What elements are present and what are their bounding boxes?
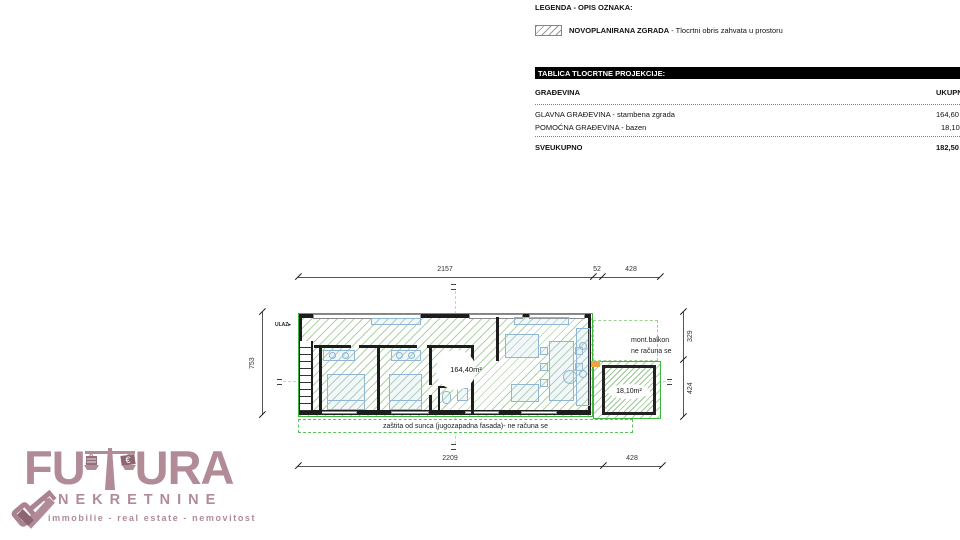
pool-detail-marker [591, 361, 600, 367]
dimension-line-bottom [298, 466, 662, 467]
main-building: 164,40m² [298, 313, 593, 417]
sink [396, 352, 403, 359]
dimension-tick [680, 413, 687, 420]
wall [421, 314, 469, 318]
table-row-label: GLAVNA GRAĐEVINA - stambena zgrada [535, 110, 675, 119]
logo-subtitle: NEKRETNINE [58, 492, 222, 508]
bed [389, 374, 422, 410]
wall [429, 345, 432, 385]
dimension-label: 428 [612, 455, 652, 462]
wall [359, 345, 417, 348]
chair [540, 363, 548, 371]
sink [342, 352, 349, 359]
wall [319, 345, 322, 415]
bed-pillow [390, 400, 421, 409]
pool: 18,10m² [602, 365, 656, 415]
table-title: TABLICA TLOCRTNE PROJEKCIJE: [535, 67, 960, 78]
section-marker [451, 444, 456, 450]
section-marker [451, 284, 456, 290]
dimension-label: 329 [687, 323, 694, 349]
table-divider [535, 104, 960, 105]
pool-area-label: 18,10m² [605, 388, 653, 395]
section-marker [667, 379, 672, 385]
wall [429, 395, 432, 415]
dimension-line-right [683, 312, 684, 417]
wall [299, 314, 313, 318]
bed-pillow [328, 400, 364, 409]
chair [540, 347, 548, 355]
table-col-total: UKUPNO [936, 88, 960, 97]
sink [329, 352, 336, 359]
house-area-label: 164,40m² [437, 365, 495, 374]
dimension-label: 2209 [420, 455, 480, 462]
dimension-label: 753 [249, 348, 256, 378]
staircase [300, 341, 313, 411]
table-col-building: GRAĐEVINA [535, 88, 580, 97]
dimension-label: 52 [584, 266, 610, 273]
pool-area: 18,10m² [593, 361, 661, 419]
sink-counter [323, 350, 355, 361]
sun-shade-note: zaštita od sunca (jugozapadna fasada)- n… [299, 420, 632, 431]
balcony-note-line: ne računa se [631, 346, 679, 357]
cabinet [371, 318, 421, 325]
dimension-line-top [298, 277, 660, 278]
chair [540, 379, 548, 387]
sofa [505, 334, 539, 358]
wall [496, 317, 499, 361]
cabinet [514, 317, 569, 325]
shower [457, 388, 468, 401]
wall [377, 345, 380, 415]
balcony-note: mont.balkon ne računa se [631, 335, 679, 357]
logo: FU € URA [22, 444, 262, 536]
euro-icon: € [125, 455, 130, 465]
kitchen-counter [576, 328, 590, 406]
table-row-value: 18,10 [941, 123, 960, 132]
check-icon [16, 494, 56, 530]
wall [438, 386, 440, 414]
scale-icon: € [83, 446, 137, 492]
section-marker [277, 379, 282, 385]
window [521, 411, 557, 414]
wall [585, 314, 591, 318]
wall [427, 345, 471, 348]
logo-tagline: immobilie - real estate - nemovitost [48, 513, 256, 523]
entrance-arrow-icon: ▸ [288, 322, 291, 328]
legend-item-name: NOVOPLANIRANA ZGRADA [569, 26, 669, 35]
table-header-bar: TABLICA TLOCRTNE PROJEKCIJE: [535, 67, 960, 79]
entrance-text: ULAZ [275, 322, 288, 328]
legend-item-desc: - Tlocrtni obris zahvata u prostoru [671, 26, 783, 35]
coffee-table [511, 384, 539, 402]
dimension-label: 424 [687, 375, 694, 401]
logo-text-suffix: URA [135, 446, 234, 490]
bed [327, 374, 365, 410]
table-total-label: SVEUKUPNO [535, 143, 583, 152]
sun-shade-strip: zaštita od sunca (jugozapadna fasada)- n… [298, 419, 633, 433]
table-row-value: 164,60 [936, 110, 960, 119]
table-divider [535, 136, 960, 137]
legend-title: LEGENDA - OPIS OZNAKA: [535, 3, 633, 12]
dimension-label: 428 [611, 266, 651, 273]
window [319, 411, 357, 414]
toilet [442, 391, 451, 404]
sink [408, 352, 415, 359]
kitchen-sink [579, 370, 587, 378]
legend-item: NOVOPLANIRANA ZGRADA - Tlocrtni obris za… [569, 26, 783, 35]
dimension-tick [259, 411, 266, 418]
table-total-value: 182,50 [936, 143, 960, 152]
round-table [563, 370, 577, 384]
window [391, 411, 429, 414]
entrance-label: ULAZ▸ [275, 322, 291, 328]
dimension-label: 2157 [415, 266, 475, 273]
legend-swatch-hatch-icon [535, 25, 562, 36]
table-row-label: POMOĆNA GRAĐEVINA - bazen [535, 123, 646, 132]
dimension-tick [657, 273, 664, 280]
dimension-line-left [262, 312, 263, 415]
dimension-tick [659, 462, 666, 469]
stove-burner [579, 342, 587, 350]
floorplan-page: LEGENDA - OPIS OZNAKA: NOVOPLANIRANA ZGR… [0, 0, 960, 540]
balcony-note-line: mont.balkon [631, 335, 679, 346]
